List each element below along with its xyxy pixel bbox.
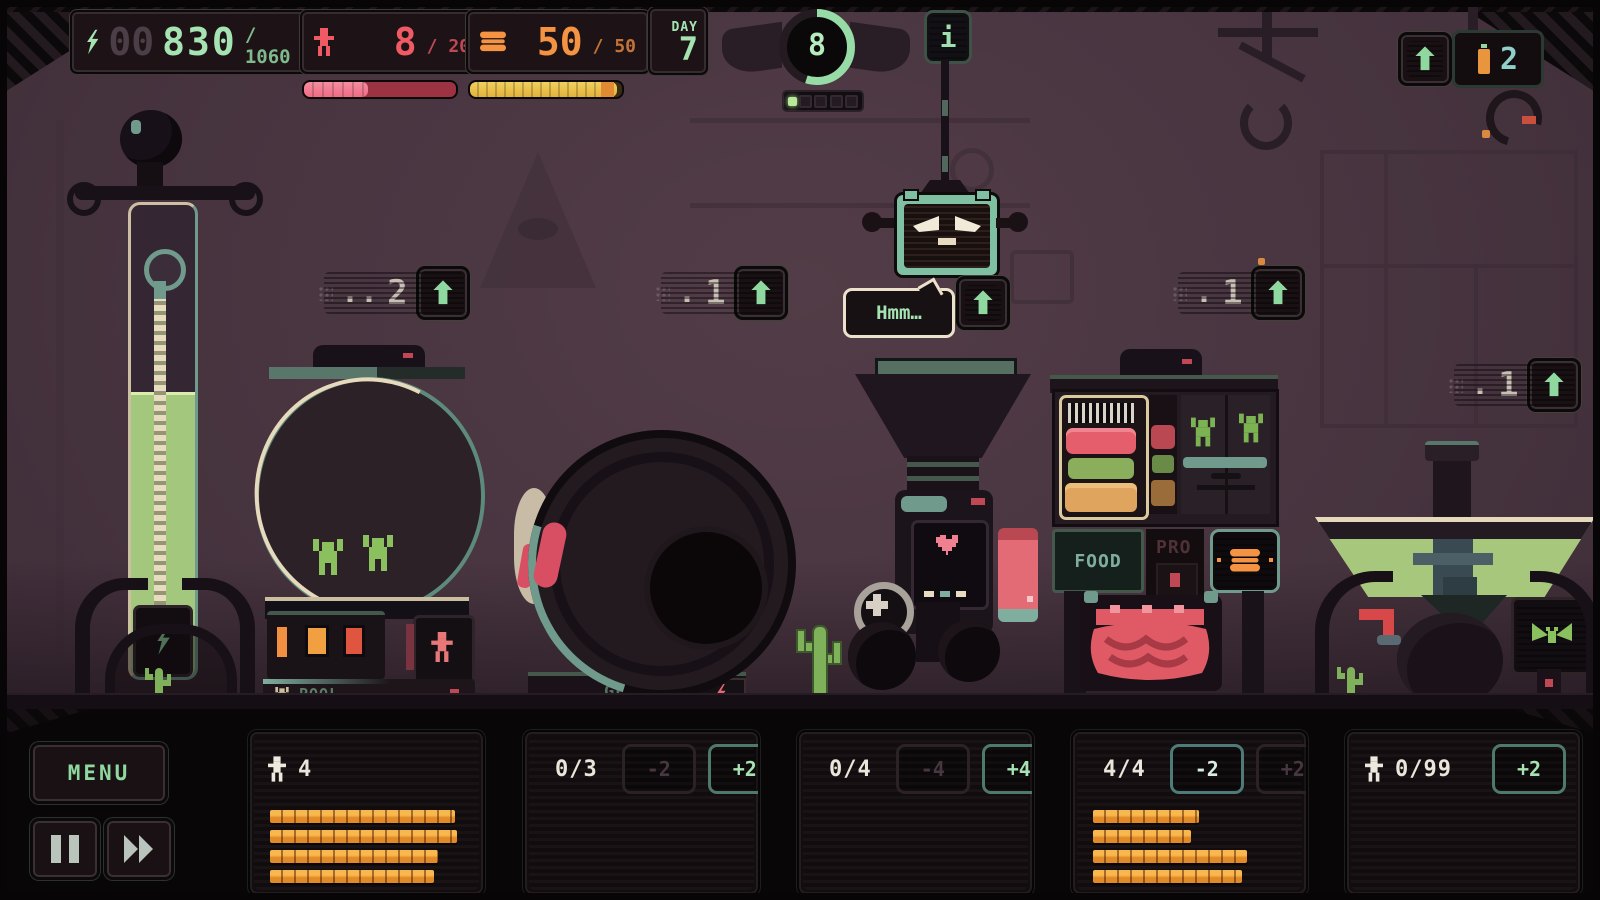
day-counter: DAY 7: [648, 7, 708, 75]
food-sign-label: FOOD: [1074, 551, 1121, 572]
gen-wheel: [528, 430, 796, 698]
up-arrow-icon: [744, 276, 778, 310]
population-bar: [302, 80, 458, 99]
machine-energy-totem[interactable]: [75, 110, 255, 706]
machine-rep[interactable]: REP: [830, 350, 1045, 706]
wave-pip: [788, 97, 797, 106]
worker-panel-pool: 4: [248, 730, 485, 896]
crane-claw: [1482, 86, 1542, 146]
population-bar-fill: [304, 82, 368, 97]
robot-face-screen: [904, 204, 990, 268]
wave-pip: [845, 95, 858, 108]
crane-upgrade-button[interactable]: [1398, 32, 1452, 86]
pro-sign-label: PRO: [1156, 537, 1192, 558]
food-shelf-column: [1059, 395, 1149, 520]
food-bar: [468, 80, 624, 99]
up-arrow-icon: [966, 286, 1000, 320]
machine-generator[interactable]: GEN: [520, 430, 830, 706]
game-screen: 00 830 / 1060 8 / 20 50 / 50 DAY 7 8: [0, 0, 1600, 900]
upgrade-right: . 1: [1448, 358, 1581, 412]
burger-icon: [1230, 549, 1260, 573]
population-counter: 8 / 20: [300, 10, 484, 74]
worker-count: 0/99: [1395, 757, 1452, 782]
burger-icon: [480, 31, 506, 53]
up-arrow-icon: [1261, 276, 1295, 310]
food-guts: [1080, 595, 1222, 691]
food-max: / 50: [593, 36, 636, 57]
creature-icon: [1191, 417, 1215, 447]
worker-count: 0/3: [555, 757, 598, 782]
add-workers-button[interactable]: +2: [1256, 744, 1308, 794]
fast-forward-button[interactable]: [104, 818, 174, 880]
up-arrow-icon: [426, 276, 460, 310]
wave-pips: [782, 90, 864, 112]
crane-rig: 2: [1390, 6, 1590, 156]
wave-counter[interactable]: 8: [776, 6, 858, 88]
spark-dot: [1258, 258, 1265, 265]
overseer-robot[interactable]: [880, 190, 1010, 280]
add-workers-button[interactable]: +2: [1492, 744, 1566, 794]
population-value: 8: [394, 20, 417, 64]
energy-counter: 00 830 / 1060: [70, 10, 310, 74]
battery-icon: [1478, 44, 1490, 74]
food-bar-cap: [601, 82, 615, 97]
worker-count: 0/4: [829, 757, 872, 782]
up-arrow-icon: [1537, 368, 1571, 402]
remove-workers-button[interactable]: -2: [622, 744, 696, 794]
upgrade-food: . 1: [1172, 266, 1305, 320]
creature-icon: [1239, 413, 1263, 443]
wave-wing-left: [722, 22, 782, 76]
crane-count: 2: [1500, 42, 1518, 77]
robot-head: [894, 192, 1000, 278]
speech-text: Hmm…: [876, 302, 922, 324]
rep-funnel: [855, 374, 1031, 458]
food-sign: FOOD: [1052, 529, 1144, 593]
heart-icon: [936, 535, 962, 559]
wave-pip: [830, 95, 843, 108]
upgrade-food-button[interactable]: [1251, 266, 1305, 320]
crane-display: 2: [1452, 30, 1544, 88]
worker-count: 4: [298, 757, 312, 782]
progress-bars: [270, 810, 463, 883]
energy-value: 830: [162, 20, 237, 64]
energy-dim: 00: [108, 20, 154, 64]
totem-crossbar: [75, 186, 255, 200]
add-workers-button[interactable]: +4: [982, 744, 1034, 794]
bg-socket: [1010, 250, 1074, 304]
claw-arm: [1218, 6, 1328, 146]
rep-screen: [911, 520, 989, 610]
pause-icon: [51, 835, 61, 863]
pink-person-icon: [431, 632, 453, 662]
bottom-bar: MENU 4 0/3 -2 +2: [0, 709, 1600, 900]
upgrade-robot-button[interactable]: [956, 276, 1010, 330]
menu-button[interactable]: MENU: [30, 742, 168, 804]
upgrade-right-button[interactable]: [1527, 358, 1581, 412]
worker-panel-rep: 0/4 -4 +4: [797, 730, 1034, 896]
worker-panel-grinder: 0/99 +2: [1345, 730, 1582, 896]
energy-max: / 1060: [245, 24, 296, 68]
worker-panel-gen: 0/3 -2 +2: [523, 730, 760, 896]
rep-canister: [998, 528, 1038, 622]
progress-bars: [1093, 810, 1286, 883]
wave-value: 8: [776, 28, 858, 63]
pool-person-panel: [413, 615, 475, 687]
food-tray-tan: [1065, 483, 1137, 512]
pause-button[interactable]: [30, 818, 100, 880]
burger-sign: [1210, 529, 1280, 593]
menu-label: MENU: [68, 761, 131, 785]
food-value: 50: [537, 20, 583, 64]
worker-panel-food: 4/4 -2 +2: [1071, 730, 1308, 896]
person-icon: [268, 756, 286, 782]
food-counter: 50 / 50: [466, 10, 650, 74]
speech-bubble: Hmm…: [843, 288, 955, 338]
add-workers-button[interactable]: +2: [708, 744, 760, 794]
food-tray-green: [1068, 458, 1134, 479]
remove-workers-button[interactable]: -2: [1170, 744, 1244, 794]
machine-grinder[interactable]: [1315, 445, 1600, 706]
pool-console: [267, 611, 385, 679]
upgrade-gen: . 1: [655, 266, 788, 320]
robot-pole: [941, 60, 949, 200]
population-max: / 20: [427, 36, 470, 57]
speech-bubble-tail: [918, 278, 944, 304]
creature-icon: [313, 539, 343, 575]
robot-angry-eyes-icon: [907, 212, 987, 252]
machine-food[interactable]: FOOD PRO: [1050, 345, 1278, 706]
wave-pip: [814, 95, 827, 108]
up-arrow-icon: [1408, 42, 1442, 76]
creature-icon: [363, 535, 393, 571]
lightning-icon: [84, 25, 100, 59]
worker-count: 4/4: [1103, 757, 1146, 782]
person-icon: [1365, 756, 1383, 782]
upgrade-pool: .. 2: [318, 266, 470, 320]
wave-wing-right: [850, 22, 910, 76]
gen-hub: [650, 532, 762, 644]
food-bar-fill: [470, 82, 617, 97]
fast-forward-icon: [122, 835, 156, 863]
machine-pool[interactable]: POOL: [255, 345, 481, 706]
remove-workers-button[interactable]: -4: [896, 744, 970, 794]
upgrade-gen-button[interactable]: [734, 266, 788, 320]
wave-pip: [799, 95, 812, 108]
info-sign[interactable]: i: [924, 10, 972, 64]
upgrade-pool-button[interactable]: [416, 266, 470, 320]
info-sign-label: i: [940, 21, 957, 54]
day-value: 7: [679, 35, 698, 63]
pool-glass-sphere: [255, 377, 485, 615]
person-icon: [314, 28, 334, 56]
food-tray-pink: [1066, 428, 1136, 454]
food-cabinet: [1052, 389, 1279, 527]
food-leg-right: [1242, 591, 1264, 706]
bg-pyramid-eye: [480, 152, 596, 288]
